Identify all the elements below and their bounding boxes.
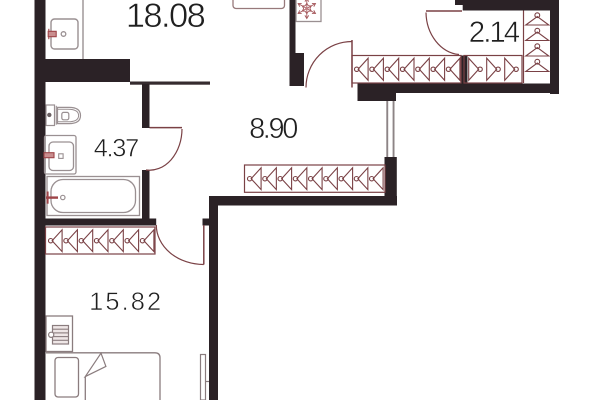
svg-text:8.90: 8.90 [249,113,297,145]
svg-text:18.08: 18.08 [126,0,205,35]
svg-text:2.14: 2.14 [469,16,520,49]
svg-text:4.37: 4.37 [94,135,138,163]
svg-text:15.82: 15.82 [89,288,163,316]
